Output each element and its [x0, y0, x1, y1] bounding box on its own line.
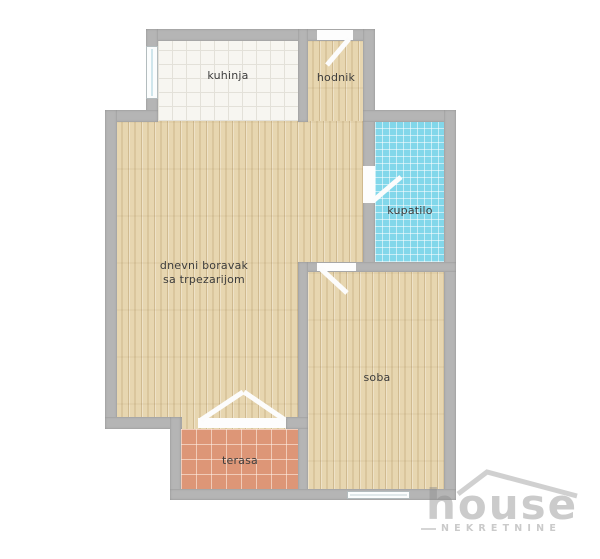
wall-bathroom-top	[363, 110, 456, 122]
bathroom-label: kupatilo	[376, 204, 444, 218]
wall-left	[105, 110, 117, 429]
kitchen-window-pane	[151, 49, 153, 96]
watermark-brand: house	[426, 484, 578, 526]
floor-plan: kuhinja hodnik kupatilo dnevni boravak s…	[0, 0, 600, 559]
entry-door-opening	[317, 30, 353, 40]
wall-terrace-door-stub	[286, 417, 308, 429]
bedroom-door-opening	[317, 263, 356, 271]
wall-bottom	[170, 489, 456, 500]
kitchen-window	[146, 46, 158, 99]
living-room-label-line2: sa trpezarijom	[118, 273, 290, 287]
wall-living-bedroom-divider	[298, 262, 308, 500]
terrace-door-threshold	[198, 418, 286, 428]
bathroom-floor	[375, 122, 444, 262]
wall-terrace-left	[170, 417, 181, 500]
terrace-label: terasa	[190, 454, 290, 468]
bathroom-door-opening	[363, 166, 375, 203]
hallway-label: hodnik	[307, 71, 365, 85]
bedroom-window	[347, 491, 410, 499]
wall-right	[444, 110, 456, 500]
living-room-label: dnevni boravak sa trpezarijom	[118, 259, 290, 287]
wall-hallway-bathroom-left	[363, 29, 375, 270]
watermark-dash	[421, 528, 436, 530]
bedroom-label: soba	[339, 371, 415, 385]
bedroom-window-pane	[350, 494, 407, 496]
living-room-label-line1: dnevni boravak	[118, 259, 290, 273]
kitchen-label: kuhinja	[168, 69, 288, 83]
watermark-subtitle: NEKRETNINE	[441, 523, 561, 534]
